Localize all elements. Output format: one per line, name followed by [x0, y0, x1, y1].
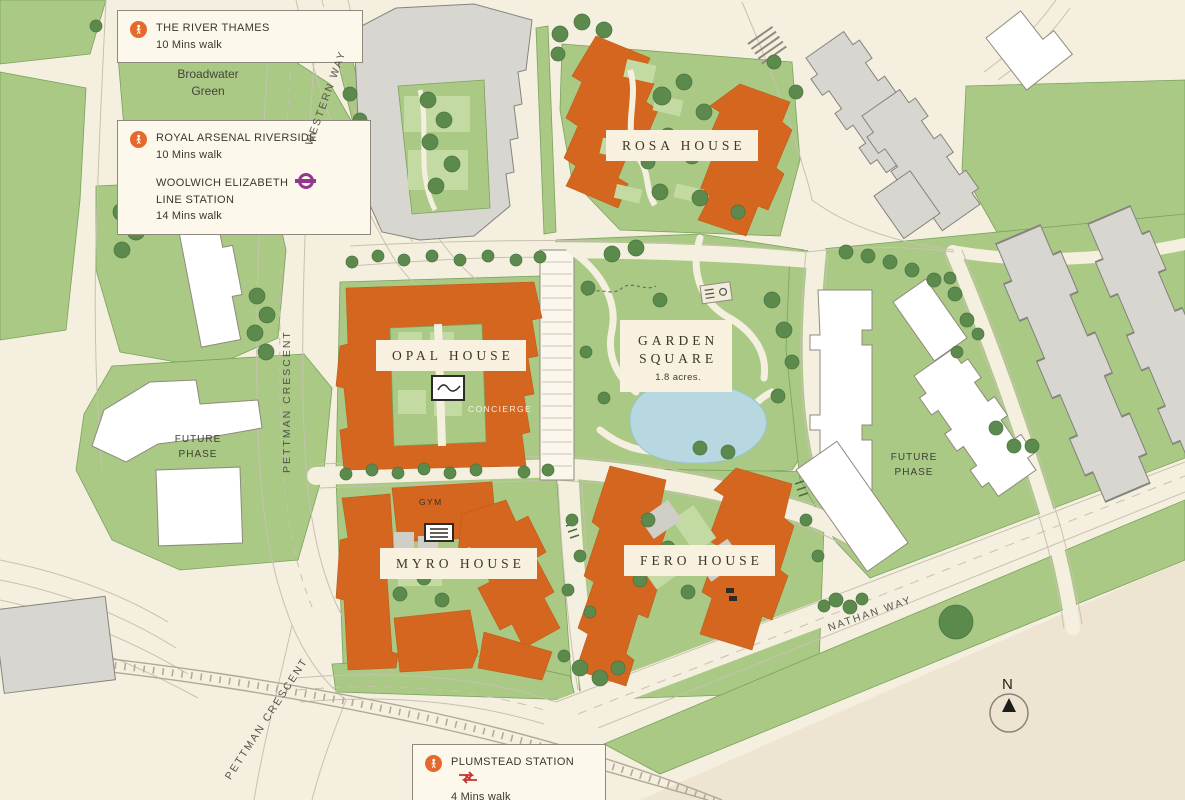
- site-masterplan: THE RIVER THAMES 10 Mins walk ROYAL ARSE…: [0, 0, 1185, 800]
- opal-house-label: OPAL HOUSE: [376, 340, 526, 371]
- national-rail-icon: [458, 775, 478, 787]
- legend-walk-time: 10 Mins walk: [156, 149, 222, 161]
- walk-icon: [130, 21, 147, 38]
- future-phase-west-label: FUTURE PHASE: [148, 432, 248, 462]
- legend-title: WOOLWICH ELIZABETH: [156, 177, 288, 189]
- garden-square-line1: GARDEN: [638, 332, 718, 350]
- place-line: FUTURE: [864, 450, 964, 465]
- place-line: FUTURE: [148, 432, 248, 447]
- legend-title-line2: LINE STATION: [156, 194, 234, 206]
- legend-title: ROYAL ARSENAL RIVERSIDE: [156, 132, 317, 144]
- gym-label: GYM: [419, 497, 443, 507]
- place-line: PHASE: [148, 447, 248, 462]
- garden-square-area: 1.8 acres.: [638, 372, 718, 383]
- building-name: MYRO HOUSE: [396, 556, 525, 571]
- place-line: Broadwater: [160, 66, 256, 83]
- building-name: OPAL HOUSE: [392, 348, 514, 363]
- myro-house-label: MYRO HOUSE: [380, 548, 537, 579]
- walk-icon: [130, 131, 147, 148]
- playground-icon: [700, 282, 732, 304]
- rosa-house-label: ROSA HOUSE: [606, 130, 758, 161]
- legend-plumstead: PLUMSTEAD STATION 4 Mins walk: [412, 744, 606, 800]
- facility-name: GYM: [419, 497, 443, 507]
- north-letter: N: [1002, 676, 1013, 693]
- building-name: FERO HOUSE: [640, 553, 763, 568]
- garden-square-label: GARDEN SQUARE 1.8 acres.: [620, 320, 732, 392]
- facility-name: CONCIERGE: [468, 404, 532, 414]
- broadwater-green-label: Broadwater Green: [160, 66, 256, 101]
- terrace-strip-building: [540, 250, 574, 480]
- building-name: ROSA HOUSE: [622, 138, 746, 153]
- north-block-courtyard: [398, 80, 490, 214]
- legend-royal-arsenal: ROYAL ARSENAL RIVERSIDE 10 Mins walk WOO…: [117, 120, 371, 235]
- place-line: Green: [160, 83, 256, 100]
- legend-title: THE RIVER THAMES: [156, 22, 270, 34]
- compass-north-label: N: [1002, 676, 1013, 693]
- road-name: PETTMAN CRESCENT: [281, 330, 293, 473]
- elizabeth-line-roundel-icon: [295, 173, 316, 189]
- garden-square-line2: SQUARE: [638, 350, 718, 368]
- myro-house-south: [394, 610, 478, 672]
- legend-walk-time: 4 Mins walk: [451, 791, 511, 800]
- place-line: PHASE: [864, 465, 964, 480]
- legend-walk-time: 10 Mins walk: [156, 39, 222, 51]
- concierge-label: CONCIERGE: [468, 404, 532, 414]
- legend-walk-time: 14 Mins walk: [156, 210, 222, 222]
- legend-river-thames: THE RIVER THAMES 10 Mins walk: [117, 10, 363, 63]
- fero-house-label: FERO HOUSE: [624, 545, 775, 576]
- pettman-crescent-label-north: PETTMAN CRESCENT: [281, 343, 293, 473]
- future-phase-east-label: FUTURE PHASE: [864, 450, 964, 480]
- legend-title: PLUMSTEAD STATION: [451, 756, 574, 768]
- walk-icon: [425, 755, 442, 772]
